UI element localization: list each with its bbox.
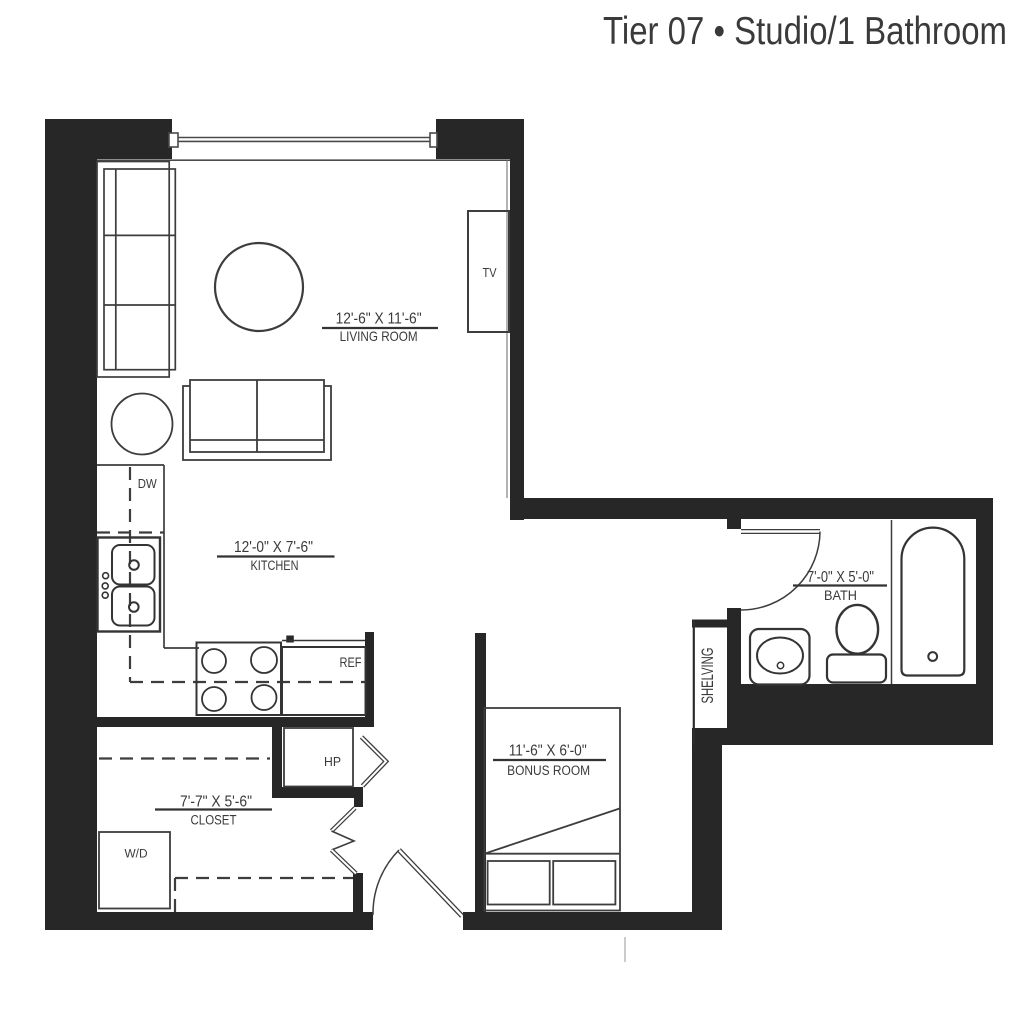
svg-text:BONUS ROOM: BONUS ROOM bbox=[507, 763, 590, 778]
svg-text:LIVING ROOM: LIVING ROOM bbox=[340, 328, 418, 344]
svg-text:TV: TV bbox=[483, 266, 498, 280]
svg-text:Tier 07 • Studio/1 Bathroom: Tier 07 • Studio/1 Bathroom bbox=[603, 10, 1007, 53]
svg-text:7'-7" X 5'-6": 7'-7" X 5'-6" bbox=[180, 794, 252, 811]
svg-text:DW: DW bbox=[138, 476, 158, 491]
svg-text:HP: HP bbox=[324, 755, 341, 769]
svg-text:11'-6" X 6'-0": 11'-6" X 6'-0" bbox=[509, 743, 587, 760]
svg-text:SHELVING: SHELVING bbox=[698, 648, 717, 704]
svg-text:W/D: W/D bbox=[125, 849, 148, 861]
svg-text:REF: REF bbox=[340, 655, 362, 670]
svg-text:KITCHEN: KITCHEN bbox=[251, 558, 299, 573]
svg-text:12'-6" X 11'-6": 12'-6" X 11'-6" bbox=[336, 311, 422, 328]
svg-text:7'-0" X 5'-0": 7'-0" X 5'-0" bbox=[807, 569, 874, 586]
svg-text:BATH: BATH bbox=[824, 588, 857, 603]
svg-text:CLOSET: CLOSET bbox=[191, 813, 237, 828]
svg-text:12'-0" X 7'-6": 12'-0" X 7'-6" bbox=[234, 539, 313, 556]
